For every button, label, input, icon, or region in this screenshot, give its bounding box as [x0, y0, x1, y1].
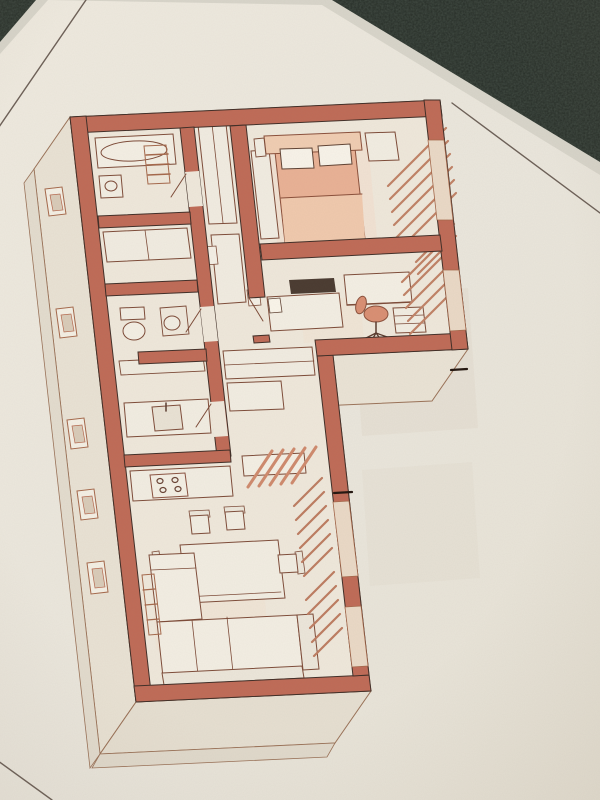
photo-vignette	[0, 0, 600, 800]
floor-plan-scene	[0, 0, 600, 800]
floor-plan-photo	[0, 0, 600, 800]
